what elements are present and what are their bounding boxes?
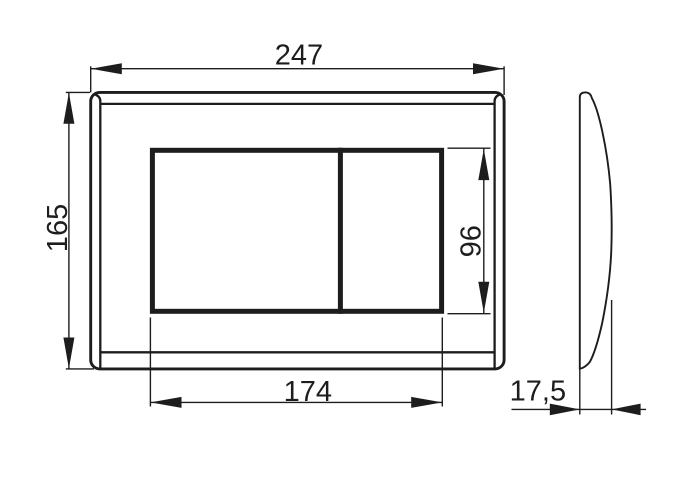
- svg-text:165: 165: [42, 204, 74, 252]
- svg-text:17,5: 17,5: [510, 376, 566, 408]
- svg-text:174: 174: [284, 376, 332, 408]
- svg-text:247: 247: [275, 39, 323, 71]
- svg-text:96: 96: [455, 225, 487, 257]
